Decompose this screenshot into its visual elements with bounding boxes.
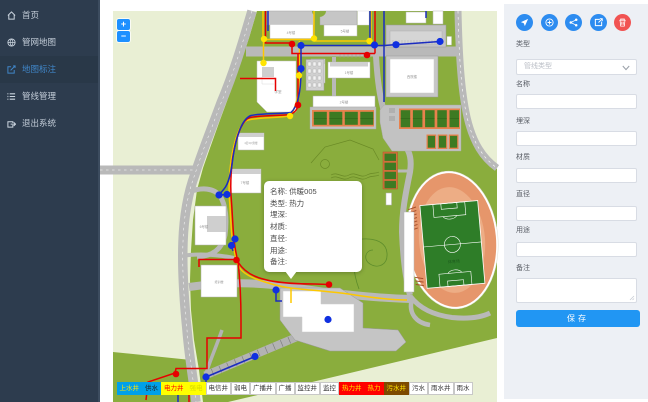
svg-text:7号楼: 7号楼: [241, 180, 250, 185]
svg-text:体育场: 体育场: [448, 257, 460, 264]
svg-text:培训楼: 培训楼: [214, 279, 223, 284]
svg-text:西院楼: 西院楼: [407, 74, 418, 79]
svg-text:1号楼: 1号楼: [345, 70, 354, 75]
svg-text:4层3公寓楼: 4层3公寓楼: [244, 141, 258, 145]
svg-text:2号楼: 2号楼: [340, 100, 349, 105]
svg-text:4号楼: 4号楼: [287, 30, 296, 35]
svg-text:6号楼: 6号楼: [200, 224, 209, 229]
svg-text:5号楼: 5号楼: [341, 29, 350, 34]
